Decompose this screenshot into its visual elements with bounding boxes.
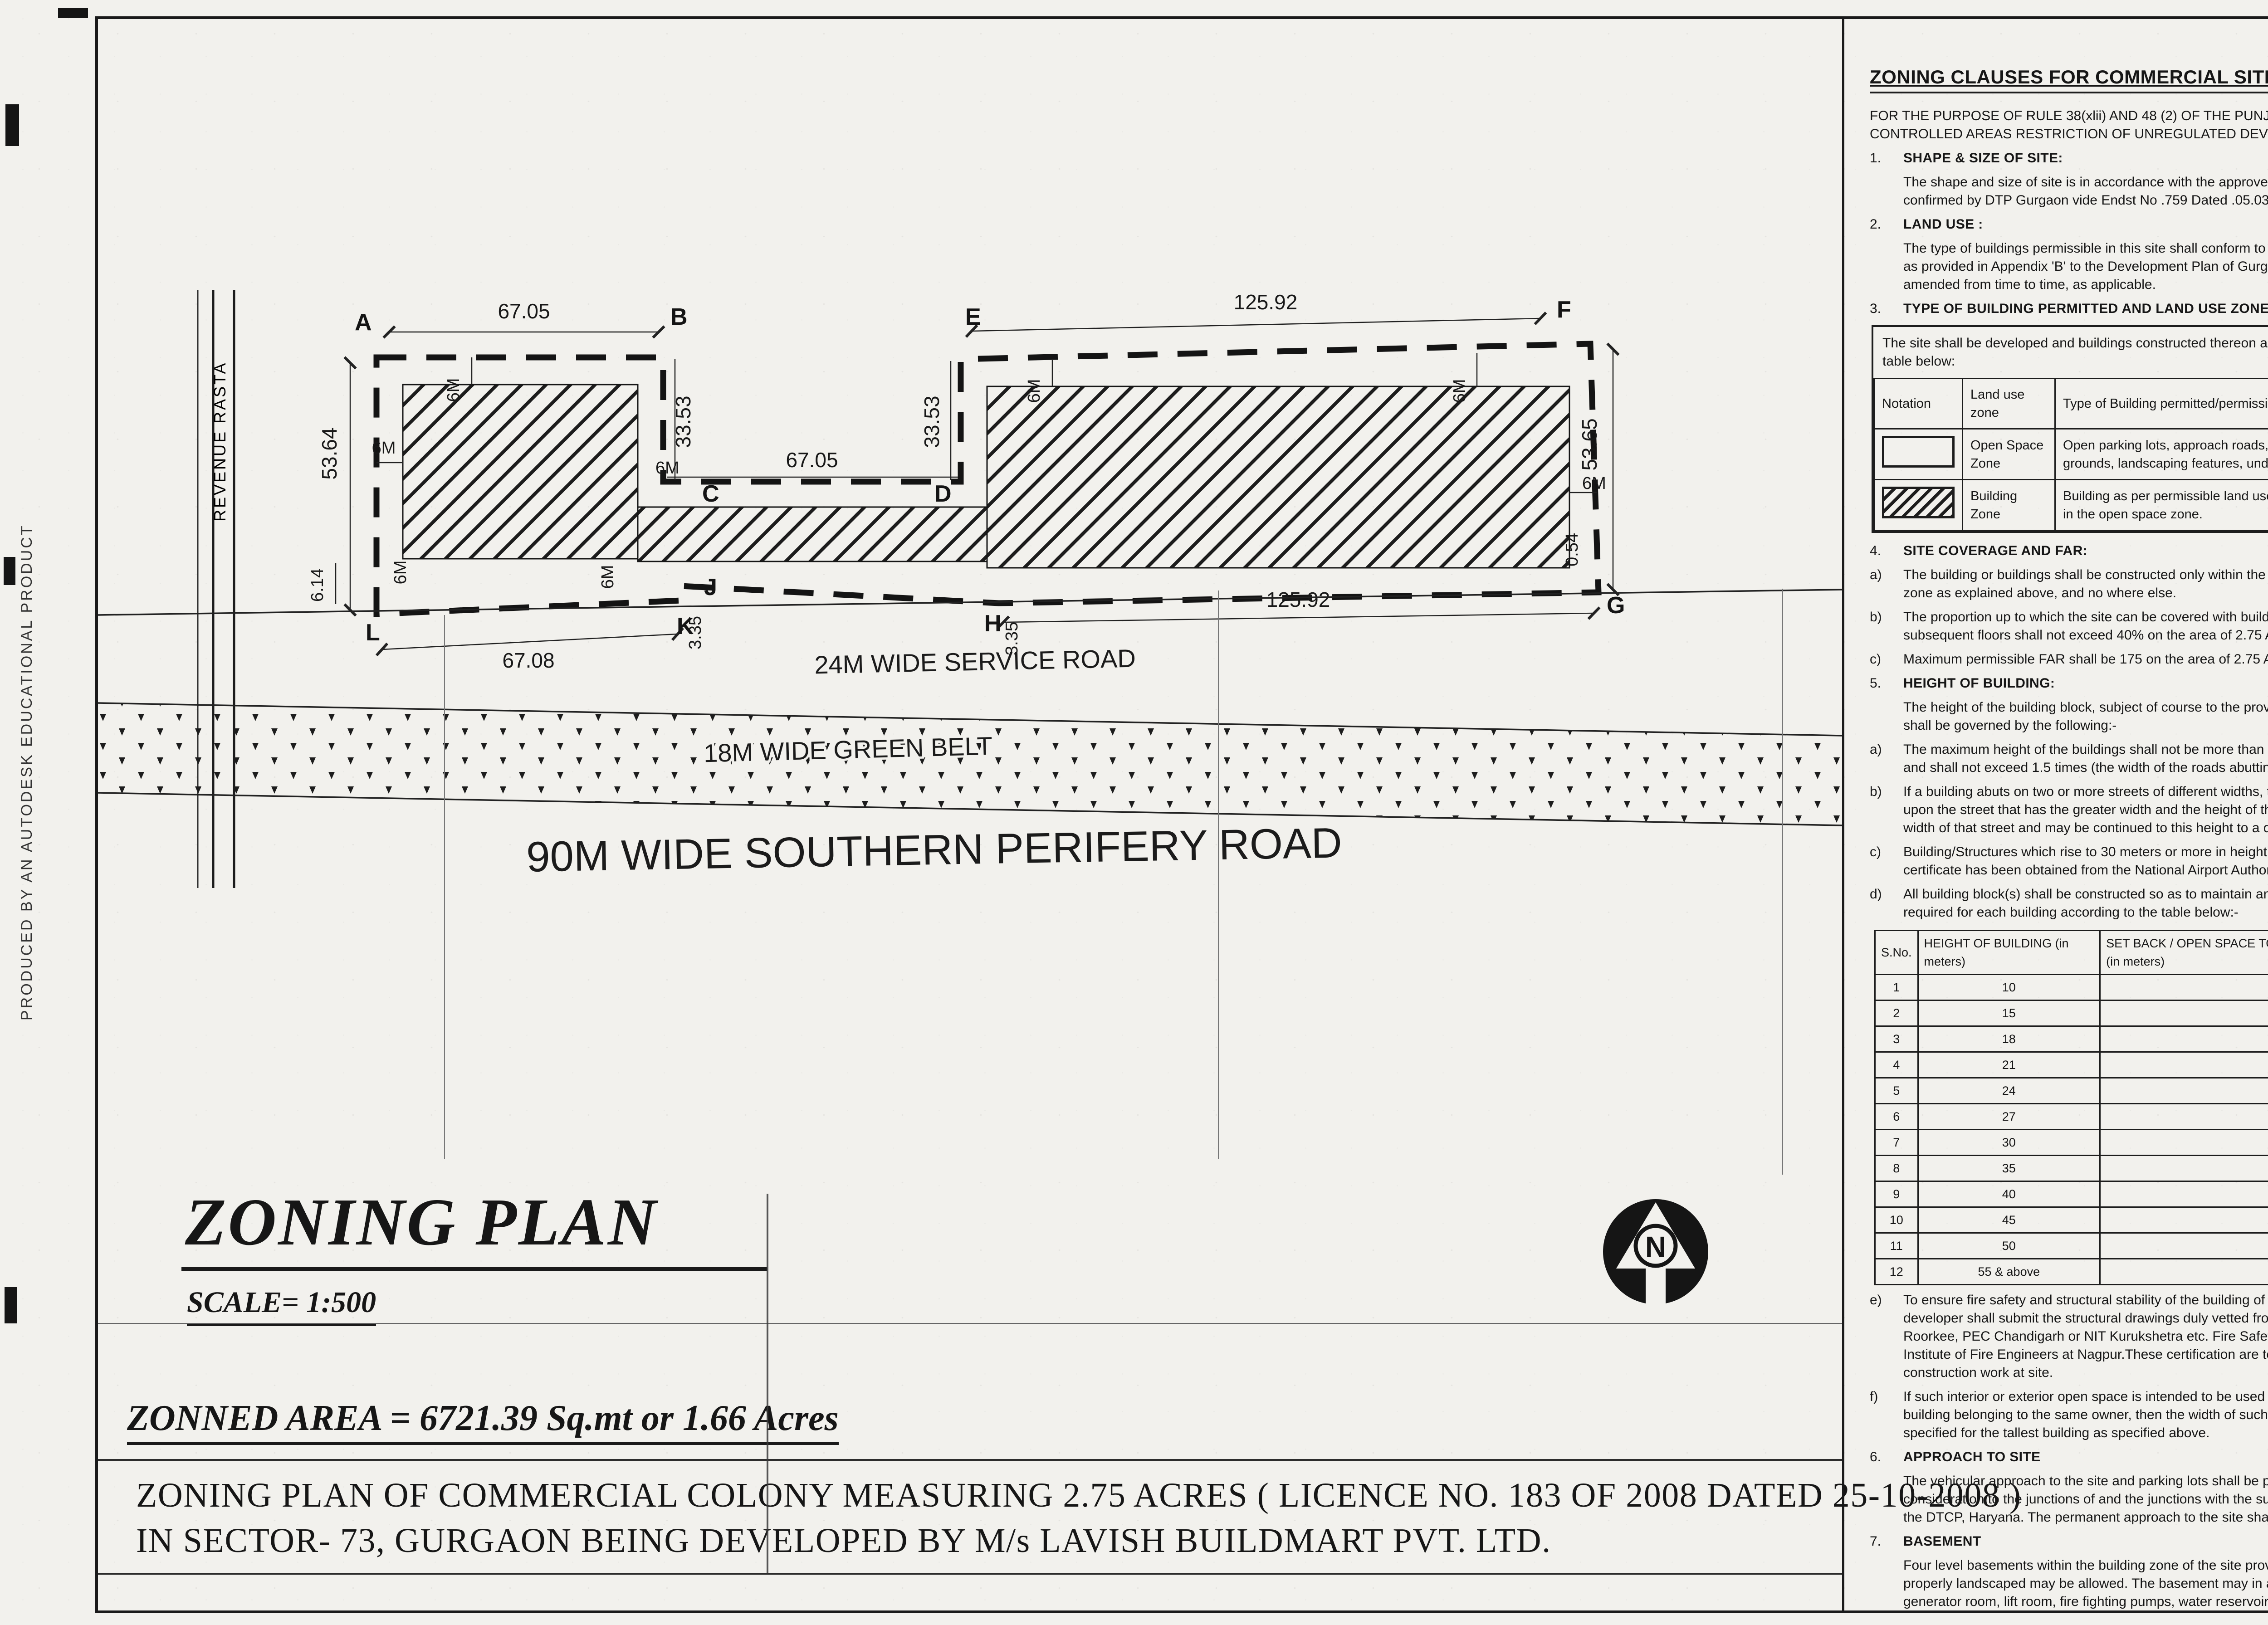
table-row: 1 10 3: [1875, 975, 2268, 1000]
cell-height: 45: [1918, 1207, 2100, 1233]
dim-ef: 125.92: [1234, 290, 1298, 314]
cell-height: 27: [1918, 1104, 2100, 1130]
svg-text:6M: 6M: [444, 378, 463, 402]
clause-row: 2. LAND USE :: [1870, 215, 2268, 234]
zone-name: Building Zone: [1963, 480, 2055, 531]
plan-title: ZONING PLAN: [181, 1184, 767, 1271]
dim-g: 0.54: [1563, 533, 1582, 566]
zoning-clauses-column: ZONING CLAUSES FOR COMMERCIAL SITE FOR T…: [1844, 19, 2268, 1610]
clause-body: Building/Structures which rise to 30 met…: [1903, 843, 2268, 879]
clause-row: The type of buildings permissible in thi…: [1870, 239, 2268, 294]
clause-number: b): [1870, 608, 1903, 644]
clause-number: b): [1870, 783, 1903, 837]
cell-height: 40: [1918, 1181, 2100, 1207]
clause-row: a) The building or buildings shall be co…: [1870, 566, 2268, 602]
cell-sno: 7: [1875, 1130, 1918, 1156]
cell-setback: 8: [2100, 1078, 2268, 1104]
zone-desc: Open parking lots, approach roads, roads…: [2055, 429, 2268, 480]
clause-row: b) If a building abuts on two or more st…: [1870, 783, 2268, 837]
dim-ed: 33.53: [920, 395, 943, 448]
open-space-zone-swatch: [1882, 436, 1955, 468]
clause-row: The height of the building block, subjec…: [1870, 698, 2268, 735]
titleblock-rule: [98, 1573, 1842, 1575]
cell-setback: 16: [2100, 1259, 2268, 1285]
clause-number: f): [1870, 1388, 1903, 1442]
clause-body: The maximum height of the buildings shal…: [1903, 741, 2268, 777]
clause-number: [1870, 239, 1903, 294]
cell-height: 35: [1918, 1156, 2100, 1181]
table-row: 8 35 11: [1875, 1156, 2268, 1181]
dim-right: 53.65: [1578, 418, 1601, 470]
clause-row: b) The proportion up to which the site c…: [1870, 608, 2268, 644]
clause-number: [1870, 173, 1903, 210]
clause-row: 3. TYPE OF BUILDING PERMITTED AND LAND U…: [1870, 300, 2268, 318]
svg-text:K: K: [677, 613, 694, 639]
svg-text:6M: 6M: [1450, 379, 1469, 403]
cell-sno: 12: [1875, 1259, 1918, 1285]
table-row: Open Space Zone Open parking lots, appro…: [1874, 429, 2268, 480]
clause-body: The shape and size of site is in accorda…: [1903, 173, 2268, 210]
svg-text:H: H: [984, 610, 1002, 637]
clauses-intro: FOR THE PURPOSE OF RULE 38(xlii) AND 48 …: [1870, 107, 2268, 143]
cell-height: 10: [1918, 975, 2100, 1000]
cell-sno: 3: [1875, 1026, 1918, 1052]
setback-table: S.No. HEIGHT OF BUILDING (in meters) SET…: [1874, 930, 2268, 1285]
cell-sno: 2: [1875, 1000, 1918, 1026]
clause-number: e): [1870, 1291, 1903, 1382]
zoned-area: ZONNED AREA = 6721.39 Sq.mt or 1.66 Acre…: [127, 1398, 839, 1445]
cell-height: 50: [1918, 1233, 2100, 1259]
clause-body: The vehicular approach to the site and p…: [1903, 1472, 2268, 1527]
clause-row: c) Maximum permissible FAR shall be 175 …: [1870, 650, 2268, 669]
clause-row: e) To ensure fire safety and structural …: [1870, 1291, 2268, 1382]
titleblock-divider: [767, 1194, 768, 1573]
clause-number: 4.: [1870, 542, 1903, 560]
clause-row: f) If such interior or exterior open spa…: [1870, 1388, 2268, 1442]
clause-body: HEIGHT OF BUILDING:: [1903, 674, 2268, 693]
table-row: 3 18 6: [1875, 1026, 2268, 1052]
table-row: 5 24 8: [1875, 1078, 2268, 1104]
north-arrow: N: [1599, 1195, 1712, 1308]
dim-bl: 6.14: [308, 568, 327, 602]
cell-sno: 10: [1875, 1207, 1918, 1233]
svg-text:D: D: [934, 481, 952, 507]
land-use-zone-table: The site shall be developed and building…: [1872, 325, 2268, 533]
clause-body: SHAPE & SIZE OF SITE:: [1903, 149, 2268, 167]
building-zone-hatch: [403, 385, 1569, 568]
table-row: 10 45 13: [1875, 1207, 2268, 1233]
svg-text:A: A: [355, 309, 372, 336]
dim-hg: 125.92: [1266, 588, 1330, 611]
clause-number: a): [1870, 566, 1903, 602]
clause-row: The vehicular approach to the site and p…: [1870, 1472, 2268, 1527]
clause-body: SITE COVERAGE AND FAR:: [1903, 542, 2268, 560]
table-row: 12 55 & above 16: [1875, 1259, 2268, 1285]
roads: 24M WIDE SERVICE ROAD 18M WIDE GREEN BEL…: [98, 589, 1842, 1175]
cell-height: 55 & above: [1918, 1259, 2100, 1285]
building-zone-swatch: [1882, 487, 1955, 518]
clause-body: The type of buildings permissible in thi…: [1903, 239, 2268, 294]
clause-number: 3.: [1870, 300, 1903, 318]
clause-number: [1870, 1472, 1903, 1527]
clause-row: 4. SITE COVERAGE AND FAR:: [1870, 542, 2268, 560]
table-row: 11 50 14: [1875, 1233, 2268, 1259]
zone-table-intro: The site shall be developed and building…: [1873, 327, 2268, 378]
svg-text:E: E: [965, 304, 981, 330]
site-plan-drawing: REVENUE RASTA: [98, 19, 1842, 1198]
plan-scale: SCALE= 1:500: [187, 1285, 376, 1326]
svg-text:G: G: [1607, 592, 1625, 619]
north-letter: N: [1645, 1230, 1666, 1263]
titleblock-rule: [98, 1323, 1842, 1324]
clause-row: 1. SHAPE & SIZE OF SITE:: [1870, 149, 2268, 167]
cell-height: 21: [1918, 1052, 2100, 1078]
clause-number: 1.: [1870, 149, 1903, 167]
cell-setback: 12: [2100, 1181, 2268, 1207]
clause-number: c): [1870, 650, 1903, 669]
clause-row: 7. BASEMENT: [1870, 1532, 2268, 1551]
clause-body: TYPE OF BUILDING PERMITTED AND LAND USE …: [1903, 300, 2268, 318]
col-height: HEIGHT OF BUILDING (in meters): [1918, 931, 2100, 975]
clause-row: 6. APPROACH TO SITE: [1870, 1448, 2268, 1466]
edge-mark: [5, 1287, 17, 1323]
clause-number: 5.: [1870, 674, 1903, 693]
dim-cd: 67.05: [786, 448, 838, 472]
clause-number: 6.: [1870, 1448, 1903, 1466]
cell-setback: 6: [2100, 1026, 2268, 1052]
clause-body: If a building abuts on two or more stree…: [1903, 783, 2268, 837]
table-header-row: Notation Land use zone Type of Building …: [1874, 379, 2268, 429]
clause-number: d): [1870, 885, 1903, 922]
table-row: 7 30 10: [1875, 1130, 2268, 1156]
periphery-road-label: 90M WIDE SOUTHERN PERIFERY ROAD: [526, 819, 1342, 880]
cell-setback: 3: [2100, 975, 2268, 1000]
table-header-row: S.No. HEIGHT OF BUILDING (in meters) SET…: [1875, 931, 2268, 975]
clause-body: If such interior or exterior open space …: [1903, 1388, 2268, 1442]
cell-height: 24: [1918, 1078, 2100, 1104]
table-row: 6 27 9: [1875, 1104, 2268, 1130]
clause-row: a) The maximum height of the buildings s…: [1870, 741, 2268, 777]
clause-body: All building block(s) shall be construct…: [1903, 885, 2268, 922]
edge-mark: [58, 8, 88, 18]
clause-body: BASEMENT: [1903, 1532, 2268, 1551]
clause-number: 2.: [1870, 215, 1903, 234]
clause-number: [1870, 1557, 1903, 1610]
cell-setback: 10: [2100, 1130, 2268, 1156]
zone-desc: Building as per permissible land use in …: [2055, 480, 2268, 531]
cell-sno: 8: [1875, 1156, 1918, 1181]
clause-row: The shape and size of site is in accorda…: [1870, 173, 2268, 210]
col-notation: Notation: [1874, 379, 1963, 429]
cell-sno: 4: [1875, 1052, 1918, 1078]
drawing-frame: REVENUE RASTA: [95, 16, 2268, 1613]
svg-text:6M: 6M: [1025, 379, 1044, 403]
clause-number: [1870, 698, 1903, 735]
clauses-heading: ZONING CLAUSES FOR COMMERCIAL SITE: [1870, 66, 2268, 93]
clause-row: d) All building block(s) shall be constr…: [1870, 885, 2268, 922]
clause-body: Maximum permissible FAR shall be 175 on …: [1903, 650, 2268, 669]
svg-text:L: L: [366, 620, 380, 646]
cell-sno: 6: [1875, 1104, 1918, 1130]
clause-number: 7.: [1870, 1532, 1903, 1551]
edge-mark: [4, 557, 15, 585]
cell-height: 15: [1918, 1000, 2100, 1026]
cell-sno: 1: [1875, 975, 1918, 1000]
cell-setback: 9: [2100, 1104, 2268, 1130]
svg-text:6M: 6M: [655, 459, 679, 478]
svg-text:J: J: [704, 574, 717, 600]
clause-row: c) Building/Structures which rise to 30 …: [1870, 843, 2268, 879]
table-row: 9 40 12: [1875, 1181, 2268, 1207]
clause-row: Four level basements within the building…: [1870, 1557, 2268, 1610]
dim-ab: 67.05: [498, 299, 550, 323]
cell-setback: 14: [2100, 1233, 2268, 1259]
cell-setback: 5: [2100, 1000, 2268, 1026]
cell-sno: 11: [1875, 1233, 1918, 1259]
revenue-rasta-label: REVENUE RASTA: [210, 361, 229, 522]
cell-sno: 5: [1875, 1078, 1918, 1104]
service-road-label: 24M WIDE SERVICE ROAD: [814, 644, 1136, 679]
caption-line-2: IN SECTOR- 73, GURGAON BEING DEVELOPED B…: [136, 1521, 1551, 1561]
clause-body: The height of the building block, subjec…: [1903, 698, 2268, 735]
zone-name: Open Space Zone: [1963, 429, 2055, 480]
titleblock-rule: [98, 1459, 1842, 1461]
table-row: 4 21 7: [1875, 1052, 2268, 1078]
edge-mark: [5, 104, 19, 146]
clause-body: To ensure fire safety and structural sta…: [1903, 1291, 2268, 1382]
clause-body: The proportion up to which the site can …: [1903, 608, 2268, 644]
cell-setback: 7: [2100, 1052, 2268, 1078]
clause-number: a): [1870, 741, 1903, 777]
svg-text:C: C: [702, 481, 719, 507]
dim-left: 53.64: [318, 427, 341, 479]
clause-row: 5. HEIGHT OF BUILDING:: [1870, 674, 2268, 693]
cell-height: 18: [1918, 1026, 2100, 1052]
revenue-rasta-road: REVENUE RASTA: [198, 290, 234, 888]
clause-body: Four level basements within the building…: [1903, 1557, 2268, 1610]
svg-text:6M: 6M: [598, 565, 617, 589]
table-row: Building Zone Building as per permissibl…: [1874, 480, 2268, 531]
svg-text:B: B: [670, 304, 688, 330]
svg-text:F: F: [1557, 297, 1571, 323]
clause-body: The building or buildings shall be const…: [1903, 566, 2268, 602]
col-land-use: Land use zone: [1963, 379, 2055, 429]
col-type: Type of Building permitted/permissible s…: [2055, 379, 2268, 429]
autodesk-educational-note: PRODUCED BY AN AUTODESK EDUCATIONAL PROD…: [18, 576, 36, 1020]
cell-height: 30: [1918, 1130, 2100, 1156]
cell-setback: 13: [2100, 1207, 2268, 1233]
caption-line-1: ZONING PLAN OF COMMERCIAL COLONY MEASURI…: [136, 1476, 2022, 1515]
cell-setback: 11: [2100, 1156, 2268, 1181]
svg-text:6M: 6M: [391, 561, 410, 585]
clause-body: LAND USE :: [1903, 215, 2268, 234]
scanned-zoning-plan-sheet: PRODUCED BY AN AUTODESK EDUCATIONAL PROD…: [0, 0, 2268, 1625]
clause-number: c): [1870, 843, 1903, 879]
table-row: 2 15 5: [1875, 1000, 2268, 1026]
clause-body: APPROACH TO SITE: [1903, 1448, 2268, 1466]
col-sno: S.No.: [1875, 931, 1918, 975]
dim-bc: 33.53: [671, 395, 695, 448]
green-belt-band: [98, 703, 1842, 825]
svg-text:6M: 6M: [1582, 474, 1606, 493]
svg-text:6M: 6M: [372, 439, 396, 458]
col-setback: SET BACK / OPEN SPACE TO BE LEFT AROUND …: [2100, 931, 2268, 975]
cell-sno: 9: [1875, 1181, 1918, 1207]
dim-lk: 67.08: [502, 649, 554, 672]
